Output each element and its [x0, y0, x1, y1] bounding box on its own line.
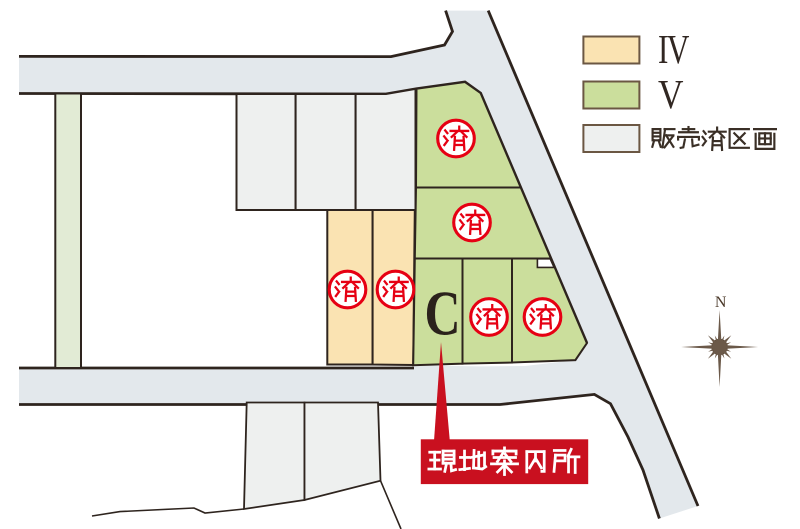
- svg-text:V: V: [658, 73, 684, 118]
- svg-text:IV: IV: [658, 27, 689, 72]
- svg-text:C: C: [424, 279, 460, 349]
- svg-text:N: N: [715, 294, 727, 311]
